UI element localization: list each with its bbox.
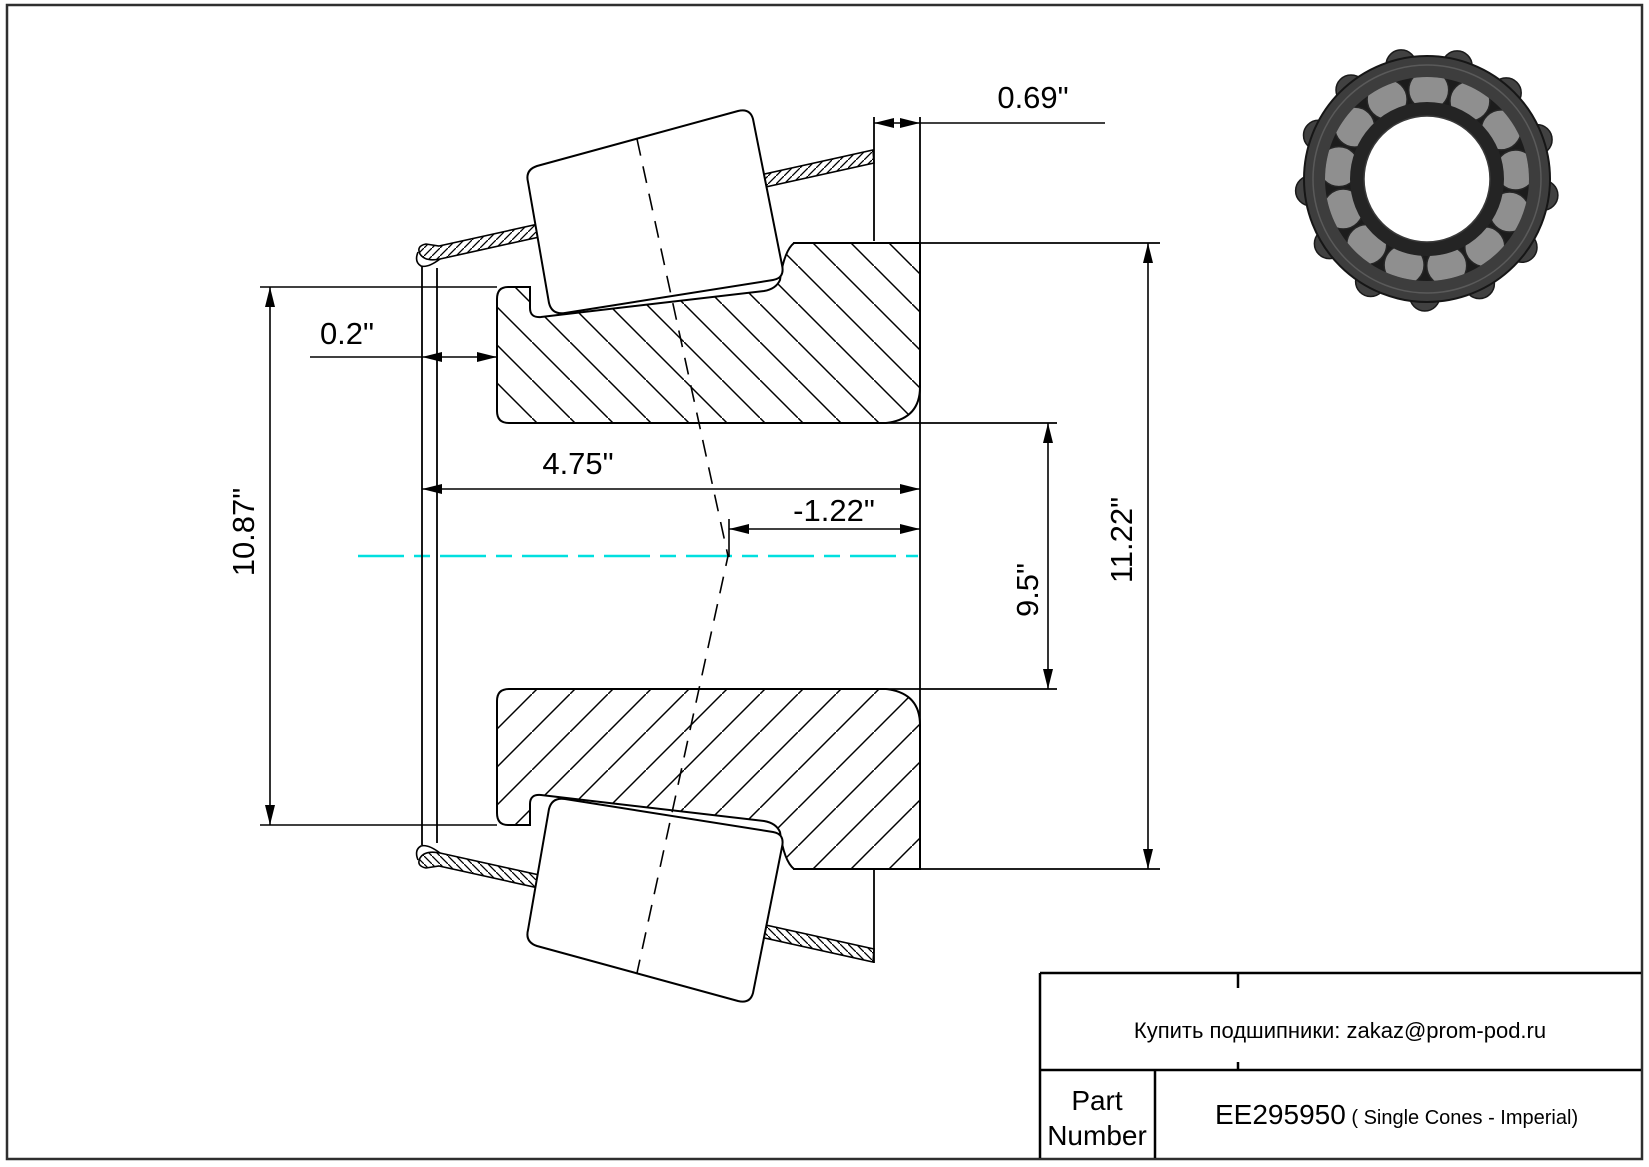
bearing-photo bbox=[1296, 50, 1558, 311]
drawing-sheet: 0.69" 0.2" 4.75" -1.22" 10.87" 9.5" 11.2… bbox=[0, 0, 1649, 1167]
dim-bore-diameter: 9.5" bbox=[1010, 563, 1045, 617]
dim-outer-diameter: 11.22" bbox=[1104, 497, 1139, 583]
dim-effective-center: -1.22" bbox=[793, 493, 875, 528]
section-view bbox=[358, 110, 1160, 1001]
part-number: EE295950 ( Single Cones - Imperial) bbox=[1215, 1099, 1578, 1130]
title-block: Купить подшипники: zakaz@prom-pod.ru Par… bbox=[1040, 973, 1641, 1158]
dim-front-standout: 0.2" bbox=[320, 316, 374, 351]
part-label-line1: Part bbox=[1071, 1085, 1123, 1116]
roller-top bbox=[527, 110, 782, 313]
dim-front-outer-diameter: 10.87" bbox=[226, 488, 261, 577]
bearing-bore bbox=[1364, 116, 1490, 242]
drawing-canvas: 0.69" 0.2" 4.75" -1.22" 10.87" 9.5" 11.2… bbox=[0, 0, 1649, 1167]
dim-back-face-standout: 0.69" bbox=[997, 80, 1068, 115]
contact-note: Купить подшипники: zakaz@prom-pod.ru bbox=[1134, 1018, 1546, 1043]
roller-bottom bbox=[527, 799, 782, 1002]
part-label-line2: Number bbox=[1047, 1120, 1147, 1151]
dim-cone-width: 4.75" bbox=[542, 446, 613, 481]
